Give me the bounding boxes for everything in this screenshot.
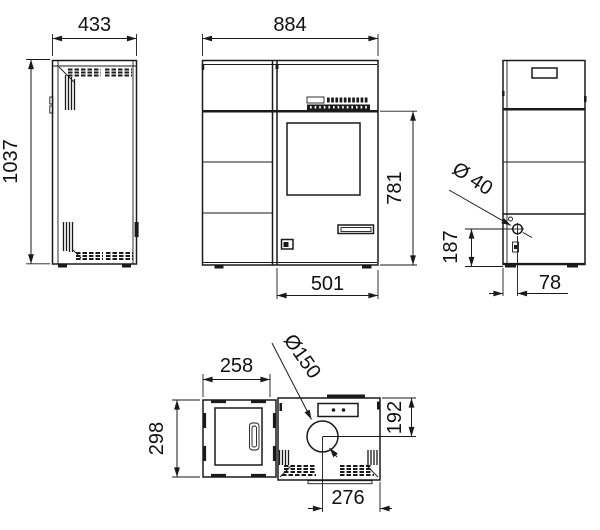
top-door-handle <box>250 423 260 450</box>
dim-front-width-label: 884 <box>273 14 306 36</box>
side-top-vent <box>66 70 133 111</box>
top-rear-strip <box>327 395 365 399</box>
dim-front-door-width-label: 501 <box>311 273 344 295</box>
top-bottom-vents <box>280 450 379 477</box>
technical-drawing-page: 433 1037 <box>0 0 600 530</box>
dim-inlet-offset-label: 78 <box>539 272 561 294</box>
dim-top-depth-label: 298 <box>146 422 168 455</box>
dim-inlet-height: 187 <box>440 229 512 267</box>
dim-inlet-offset: 78 <box>489 236 568 296</box>
right-foot <box>505 265 516 268</box>
dim-flue-diameter: Ø150 <box>272 330 337 457</box>
dim-side-height: 1037 <box>0 60 50 264</box>
top-base-strip <box>308 481 372 484</box>
dim-top-door-width: 258 <box>203 355 270 397</box>
side-foot <box>58 264 67 268</box>
front-foot <box>362 265 372 269</box>
view-side-left: 433 1037 <box>0 14 139 268</box>
dim-air-inlet-diameter: Ø 40 <box>448 158 532 238</box>
top-right-section <box>278 395 380 484</box>
right-top-vent <box>532 68 557 78</box>
front-control-panel <box>307 97 370 110</box>
dim-side-width-label: 433 <box>78 14 111 36</box>
dim-front-door-width: 501 <box>277 268 378 299</box>
dim-flue-from-right-label: 276 <box>331 487 364 509</box>
side-foot <box>122 264 131 268</box>
top-door-section <box>203 400 276 477</box>
stove-dimension-drawing: 433 1037 <box>0 0 600 530</box>
view-front: 884 781 501 <box>202 14 417 299</box>
front-body-outline <box>203 61 379 266</box>
right-foot <box>567 265 578 268</box>
side-bottom-vent <box>64 222 134 259</box>
front-left-panels <box>203 61 273 266</box>
view-top: 258 298 192 276 Ø150 <box>146 330 416 512</box>
display-window <box>307 97 324 103</box>
dim-front-width: 884 <box>203 14 379 56</box>
dim-front-right-height: 781 <box>380 111 417 265</box>
top-control-panel <box>318 404 358 417</box>
air-inlet-fitting <box>511 223 524 235</box>
front-door-handle <box>338 225 374 234</box>
dim-side-width: 433 <box>53 14 137 56</box>
dim-flue-diameter-label: Ø150 <box>279 330 325 383</box>
front-foot <box>215 265 224 269</box>
dim-side-height-label: 1037 <box>0 139 22 184</box>
dim-front-right-height-label: 781 <box>384 171 406 204</box>
front-glass-window <box>287 123 360 195</box>
view-side-right: Ø 40 187 78 <box>440 61 587 297</box>
dim-flue-from-rear-label: 192 <box>384 401 406 434</box>
control-buttons <box>327 98 368 103</box>
dim-top-depth: 298 <box>146 400 200 477</box>
dim-top-door-width-label: 258 <box>220 355 253 377</box>
dim-inlet-height-label: 187 <box>440 230 462 263</box>
screw-mark <box>509 217 513 221</box>
front-igniter-switch <box>282 240 294 250</box>
side-latch-mark <box>135 222 139 237</box>
